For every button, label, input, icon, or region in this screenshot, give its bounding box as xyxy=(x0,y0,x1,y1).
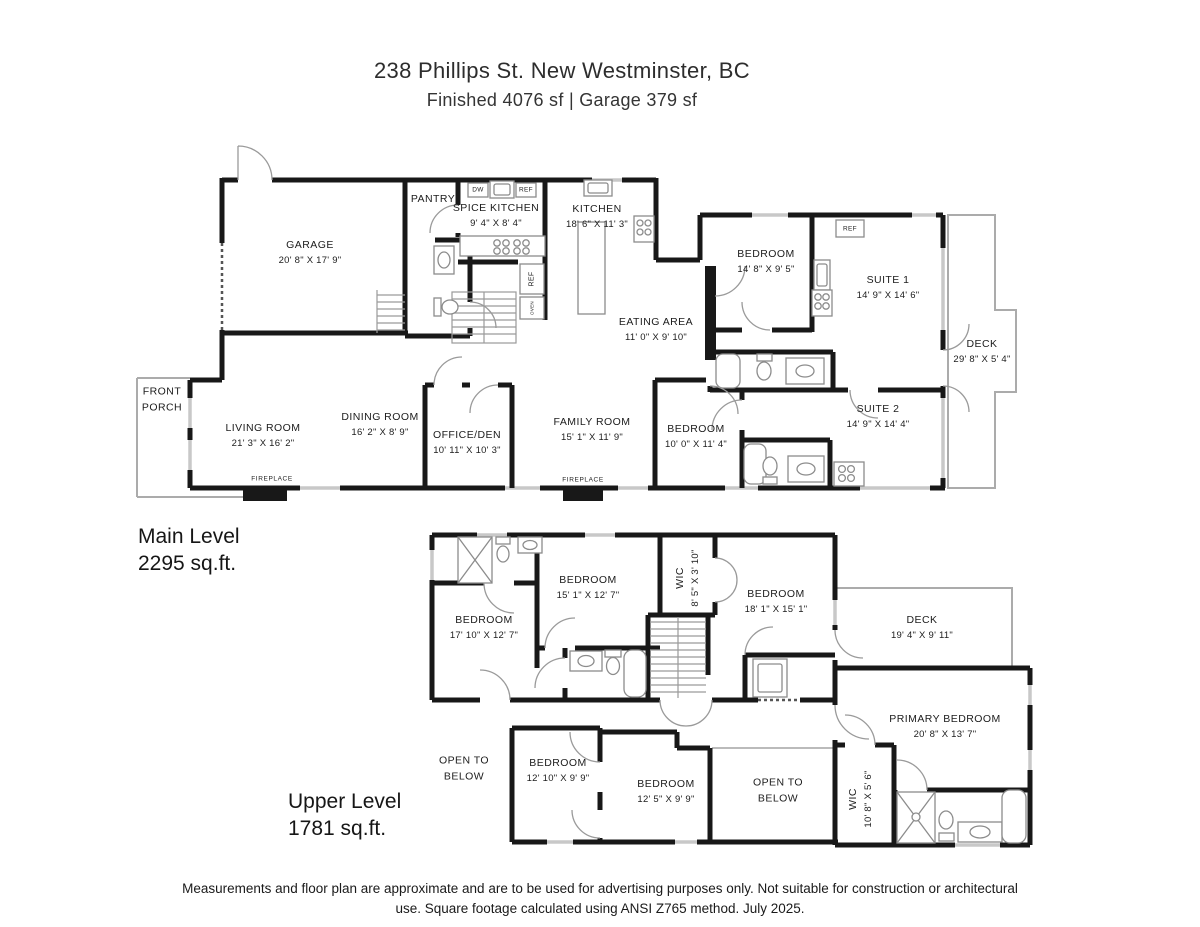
main-level-caption: Main Level 2295 sq.ft. xyxy=(138,524,240,578)
open-to-below-right: OPEN TO BELOW xyxy=(747,775,809,807)
main-level-plan xyxy=(130,140,1040,515)
page-subtitle: Finished 4076 sf | Garage 379 sf xyxy=(0,90,1124,111)
upper-level-plan xyxy=(420,520,1040,860)
room-label-wic-2: WIC 10' 8" X 5' 6" xyxy=(846,770,876,827)
room-label-bedroom-12-10: BEDROOM 12' 10" X 9' 9" xyxy=(527,756,590,786)
fridge-label-suite1: REF xyxy=(843,226,857,233)
fireplace-label-left: FIREPLACE xyxy=(251,476,293,483)
room-label-bedroom-18: BEDROOM 18' 1" X 15' 1" xyxy=(745,587,808,617)
room-label-spice-kitchen: SPICE KITCHEN 9' 4" X 8' 4" xyxy=(453,201,539,231)
room-label-office-den: OFFICE/DEN 10' 11" X 10' 3" xyxy=(433,428,501,458)
room-label-suite-2: SUITE 2 14' 9" X 14' 4" xyxy=(847,402,910,432)
room-label-dining-room: DINING ROOM 16' 2" X 8' 9" xyxy=(341,410,418,440)
room-label-bedroom-1: BEDROOM 14' 8" X 9' 5" xyxy=(737,247,794,277)
main-level-name: Main Level xyxy=(138,524,240,551)
room-label-kitchen: KITCHEN 18' 6" X 11' 3" xyxy=(566,202,628,232)
upper-level-name: Upper Level xyxy=(288,789,401,816)
main-level-area: 2295 sq.ft. xyxy=(138,551,240,578)
room-label-pantry: PANTRY xyxy=(411,192,455,208)
room-label-bedroom-12-5: BEDROOM 12' 5" X 9' 9" xyxy=(637,777,694,807)
upper-level-caption: Upper Level 1781 sq.ft. xyxy=(288,789,401,843)
oven-label: OVEN xyxy=(530,301,535,315)
room-label-deck-main: DECK 29' 8" X 5' 4" xyxy=(953,337,1010,367)
room-label-bedroom-2: BEDROOM 10' 0" X 11' 4" xyxy=(665,422,727,452)
deck-outline xyxy=(137,215,1016,497)
room-label-suite-1: SUITE 1 14' 9" X 14' 6" xyxy=(857,273,920,303)
room-label-front-porch: FRONT PORCH xyxy=(131,384,193,416)
room-label-bedroom-15: BEDROOM 15' 1" X 12' 7" xyxy=(557,573,620,603)
stairs-upper xyxy=(650,617,706,698)
room-label-bedroom-17: BEDROOM 17' 10" X 12' 7" xyxy=(450,613,518,643)
open-to-below-left: OPEN TO BELOW xyxy=(433,753,495,785)
upper-level-area: 1781 sq.ft. xyxy=(288,816,401,843)
floorplan-page: 238 Phillips St. New Westminster, BC Fin… xyxy=(0,0,1200,927)
room-label-living-room: LIVING ROOM 21' 3" X 16' 2" xyxy=(226,421,301,451)
wall-block xyxy=(705,266,716,360)
dishwasher-label: DW xyxy=(472,187,483,194)
room-label-eating-area: EATING AREA 11' 0" X 9' 10" xyxy=(619,315,693,345)
disclaimer-line-2: use. Square footage calculated using ANS… xyxy=(0,901,1200,916)
room-label-primary-bedroom: PRIMARY BEDROOM 20' 8" X 13' 7" xyxy=(889,712,1000,742)
room-label-wic-1: WIC 8' 5" X 3' 10" xyxy=(673,549,703,606)
fridge-label-spice: REF xyxy=(519,187,533,194)
walls-upper xyxy=(432,535,1030,845)
fireplace-label-right: FIREPLACE xyxy=(562,477,604,484)
disclaimer-line-1: Measurements and floor plan are approxim… xyxy=(0,881,1200,896)
fridge-label-tall: REF xyxy=(529,272,536,287)
page-title: 238 Phillips St. New Westminster, BC xyxy=(0,58,1124,84)
room-label-deck-upper: DECK 19' 4" X 9' 11" xyxy=(891,613,953,643)
fixtures-upper xyxy=(458,537,1026,843)
room-label-garage: GARAGE 20' 8" X 17' 9" xyxy=(279,238,342,268)
room-label-family-room: FAMILY ROOM 15' 1" X 11' 9" xyxy=(554,415,631,445)
